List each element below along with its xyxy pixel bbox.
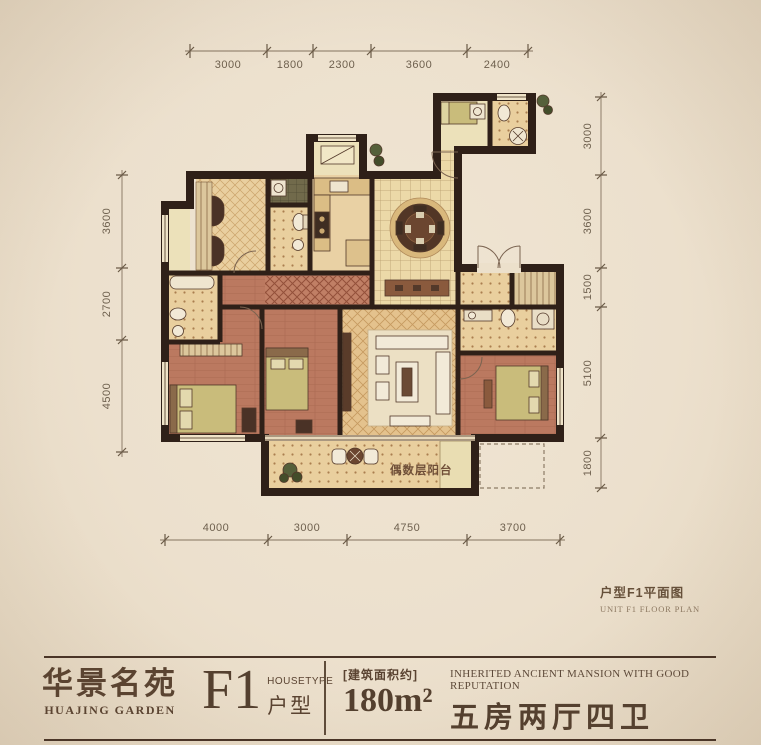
dim-bottom-4: 3700 <box>500 522 526 534</box>
footer-divider <box>324 661 326 735</box>
dim-right-4: 5100 <box>582 360 594 386</box>
dim-top-4: 3600 <box>406 59 432 71</box>
unit-block: F1 HOUSETYPE 户型 <box>202 662 333 720</box>
dim-top-3: 2300 <box>329 59 355 71</box>
description-block: INHERITED ANCIENT MANSION WITH GOOD REPU… <box>450 668 761 736</box>
area-block: [建筑面积约] 180m² <box>343 666 433 719</box>
plan-caption-zh: 户型F1平面图 <box>600 582 730 601</box>
brochure-page: 偶数层阳台 3000 1800 2300 3600 2400 4000 3000… <box>0 0 761 745</box>
plan-caption: 户型F1平面图 UNIT F1 FLOOR PLAN <box>600 582 730 614</box>
dim-bottom-3: 4750 <box>394 522 420 534</box>
dim-right-2: 3600 <box>582 208 594 234</box>
dim-right-5: 1800 <box>582 450 594 476</box>
dim-left-2: 2700 <box>101 291 113 317</box>
terrace-dashed-outline <box>480 444 544 488</box>
footer: 华景名苑 HUAJING GARDEN F1 HOUSETYPE 户型 [建筑面… <box>0 650 761 745</box>
project-brand: 华景名苑 HUAJING GARDEN <box>40 668 180 718</box>
footer-bottom-rule <box>44 739 716 741</box>
plan-caption-en: UNIT F1 FLOOR PLAN <box>600 604 730 614</box>
project-name-zh: 华景名苑 <box>40 668 180 701</box>
dim-bottom-2: 3000 <box>294 522 320 534</box>
dim-right-1: 3000 <box>582 123 594 149</box>
slogan-en: INHERITED ANCIENT MANSION WITH GOOD REPU… <box>450 668 761 692</box>
area-note: [建筑面积约] <box>343 666 433 683</box>
balcony-label: 偶数层阳台 <box>390 463 453 477</box>
dim-bottom-1: 4000 <box>203 522 229 534</box>
dim-right-3: 1500 <box>582 274 594 300</box>
area-value: 180m² <box>343 683 433 719</box>
layout-zh: 五房两厅四卫 <box>450 694 761 736</box>
dim-left-1: 3600 <box>101 208 113 234</box>
footer-top-rule <box>44 656 716 658</box>
dim-top-5: 2400 <box>484 59 510 71</box>
unit-code: F1 <box>202 662 261 720</box>
dim-left-3: 4500 <box>101 383 113 409</box>
floor-plan: 偶数层阳台 3000 1800 2300 3600 2400 4000 3000… <box>0 0 761 620</box>
dim-top-2: 1800 <box>277 59 303 71</box>
dim-top-1: 3000 <box>215 59 241 71</box>
project-name-en: HUAJING GARDEN <box>40 703 180 718</box>
